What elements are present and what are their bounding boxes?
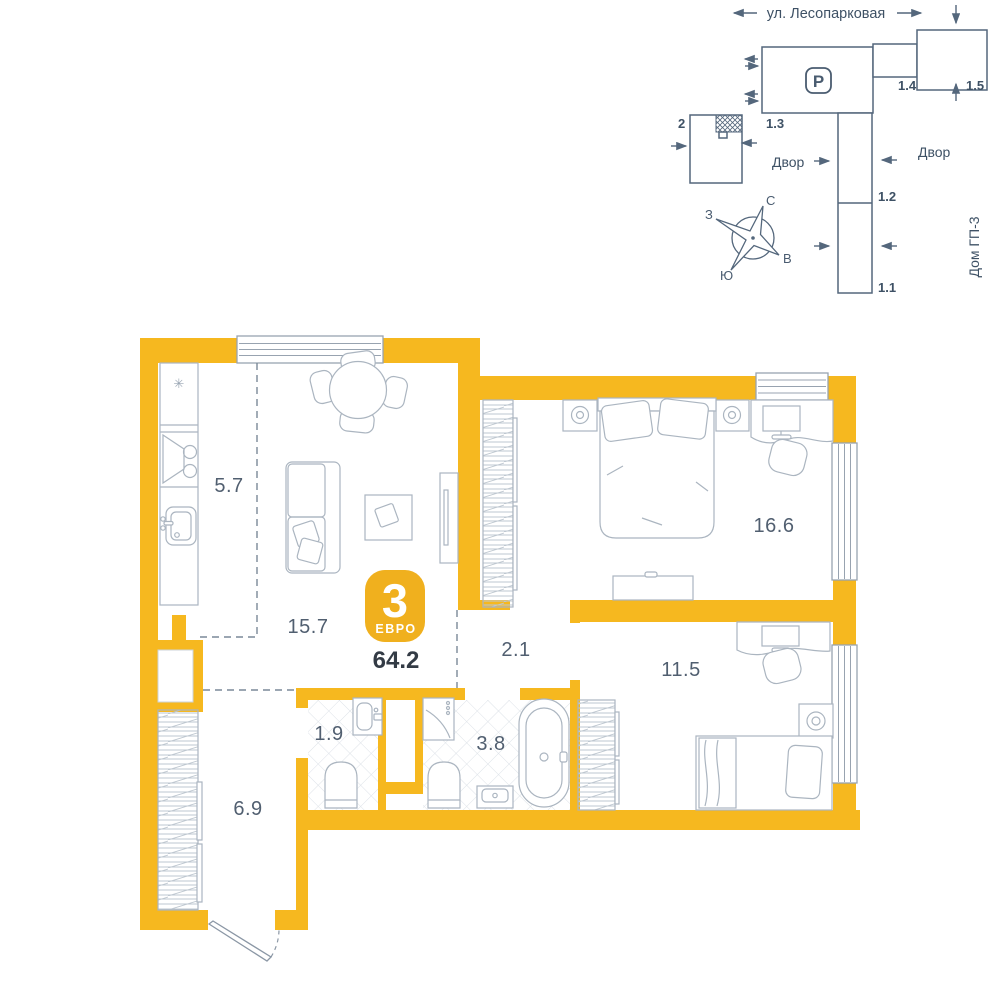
wc-sink — [353, 698, 382, 735]
door-leaf — [209, 921, 271, 961]
yard-left-label: Двор — [772, 154, 805, 170]
floorplan-image: ул. Лесопарковая P 1.3 1.4 1.5 — [0, 0, 1000, 1000]
wardrobe-door-panel — [513, 418, 517, 502]
wc-area-label: 1.9 — [314, 723, 343, 745]
compass-center-dot — [751, 236, 755, 240]
bedroom-wardrobe — [483, 400, 513, 607]
compass-rose: С З В Ю — [705, 193, 792, 283]
wall-niche-right — [193, 640, 203, 712]
living-room-furniture — [286, 350, 458, 573]
nightstand-right — [716, 400, 749, 431]
wall-bath-top-right — [520, 688, 578, 700]
window-bedroom-right — [832, 443, 857, 580]
building-1-5: 1.5 — [917, 5, 987, 101]
wall-bedroom-room2 — [570, 600, 837, 622]
wall-duct-right — [415, 700, 423, 794]
door-swing-arc — [271, 929, 279, 957]
bathtub-faucet — [560, 752, 567, 762]
building-1-4-outline — [873, 44, 917, 77]
compass-star-icon — [716, 206, 779, 270]
apartment-badge: 3 ЕВРО 64.2 — [365, 570, 425, 674]
compass-east-label: В — [783, 251, 792, 266]
tv-stand — [613, 572, 693, 600]
bed-pillow — [785, 745, 823, 799]
building-1-2-label: 1.2 — [878, 189, 896, 204]
wardrobe-door-panel — [197, 844, 202, 902]
tv-unit — [440, 473, 458, 563]
total-area-value: 64.2 — [373, 647, 420, 674]
compass-west-label: З — [705, 207, 713, 222]
compass-south-label: Ю — [720, 268, 733, 283]
window-bedroom-top — [756, 373, 828, 400]
building-1-4-label: 1.4 — [898, 78, 917, 93]
street-label: ул. Лесопарковая — [767, 6, 886, 22]
wall-bottom — [296, 810, 860, 830]
entry-area-label: 6.9 — [233, 798, 262, 820]
wall-entry-right — [275, 910, 308, 930]
kitchen-area-label: 5.7 — [214, 475, 243, 497]
storage-niche — [158, 650, 193, 702]
building-2: 2 — [671, 115, 757, 183]
fridge-snowflake-icon: ✳ — [174, 377, 185, 392]
wardrobe-door-panel — [197, 782, 202, 840]
bedroom-desk — [751, 400, 833, 443]
building-1-3-label: 1.3 — [766, 116, 784, 131]
bathroom-sink — [477, 786, 513, 808]
kitchen-counter — [160, 363, 198, 605]
parking-icon-letter: P — [813, 72, 824, 91]
wardrobe-door-panel — [615, 760, 619, 804]
nightstand-left — [563, 400, 597, 431]
badge-rooms-count: 3 — [382, 574, 408, 627]
corridor-area-label: 2.1 — [501, 639, 530, 661]
bedroom-area-label: 16.6 — [754, 515, 795, 537]
building-2-label: 2 — [678, 116, 685, 131]
wall-entry-left — [140, 910, 208, 930]
entrance-door — [209, 921, 279, 961]
room2-furniture — [578, 622, 833, 810]
sofa — [286, 462, 340, 573]
current-building-marker — [716, 115, 742, 132]
floorplan-page: ул. Лесопарковая P 1.3 1.4 1.5 — [0, 0, 1000, 1000]
building-2-stub — [719, 132, 727, 138]
street: ул. Лесопарковая — [734, 6, 921, 22]
building-1-5-label: 1.5 — [966, 78, 984, 93]
wardrobe-door-panel — [615, 712, 619, 756]
house-gp3-label: Дом ГП-3 — [966, 216, 982, 277]
building-1-4: 1.4 — [873, 44, 917, 93]
coffee-table — [365, 495, 412, 540]
bedroom-furniture — [483, 398, 833, 607]
kitchen-sink — [161, 507, 196, 545]
site-plan: ул. Лесопарковая P 1.3 1.4 1.5 — [671, 5, 987, 295]
wc-toilet — [325, 762, 357, 808]
building-1-1-label: 1.1 — [878, 280, 896, 295]
badge-euro-label: ЕВРО — [375, 622, 416, 636]
bathtub — [519, 699, 569, 807]
wall-wc-left-lower — [296, 758, 308, 930]
apartment-plan: ✳ — [140, 336, 860, 961]
room2-wardrobe — [578, 700, 615, 810]
compass-north-label: С — [766, 193, 775, 208]
bed-pillow — [657, 398, 709, 440]
double-bed — [598, 398, 716, 538]
dining-table — [330, 362, 387, 419]
building-column-1-1-1-2: 1.2 1.1 — [814, 113, 897, 295]
wall-duct-bottom — [378, 782, 423, 794]
washing-machine — [423, 698, 454, 740]
yard-right-label: Двор — [918, 144, 951, 160]
room2-nightstand — [799, 704, 833, 738]
living-area-label: 15.7 — [288, 616, 329, 638]
bathroom-area-label: 3.8 — [476, 733, 505, 755]
bed-pillow — [601, 400, 654, 442]
sofa-pillow — [297, 538, 324, 565]
wardrobe-door-panel — [513, 506, 517, 590]
bathroom-toilet — [428, 762, 460, 808]
wall-kitchen-stub — [172, 615, 186, 643]
wall-left — [140, 338, 158, 930]
kitchen-fixtures: ✳ — [160, 363, 198, 605]
single-bed — [696, 736, 832, 810]
window-room2-right — [832, 645, 857, 783]
room2-area-label: 11.5 — [661, 659, 700, 681]
hall-wardrobe — [158, 710, 198, 910]
